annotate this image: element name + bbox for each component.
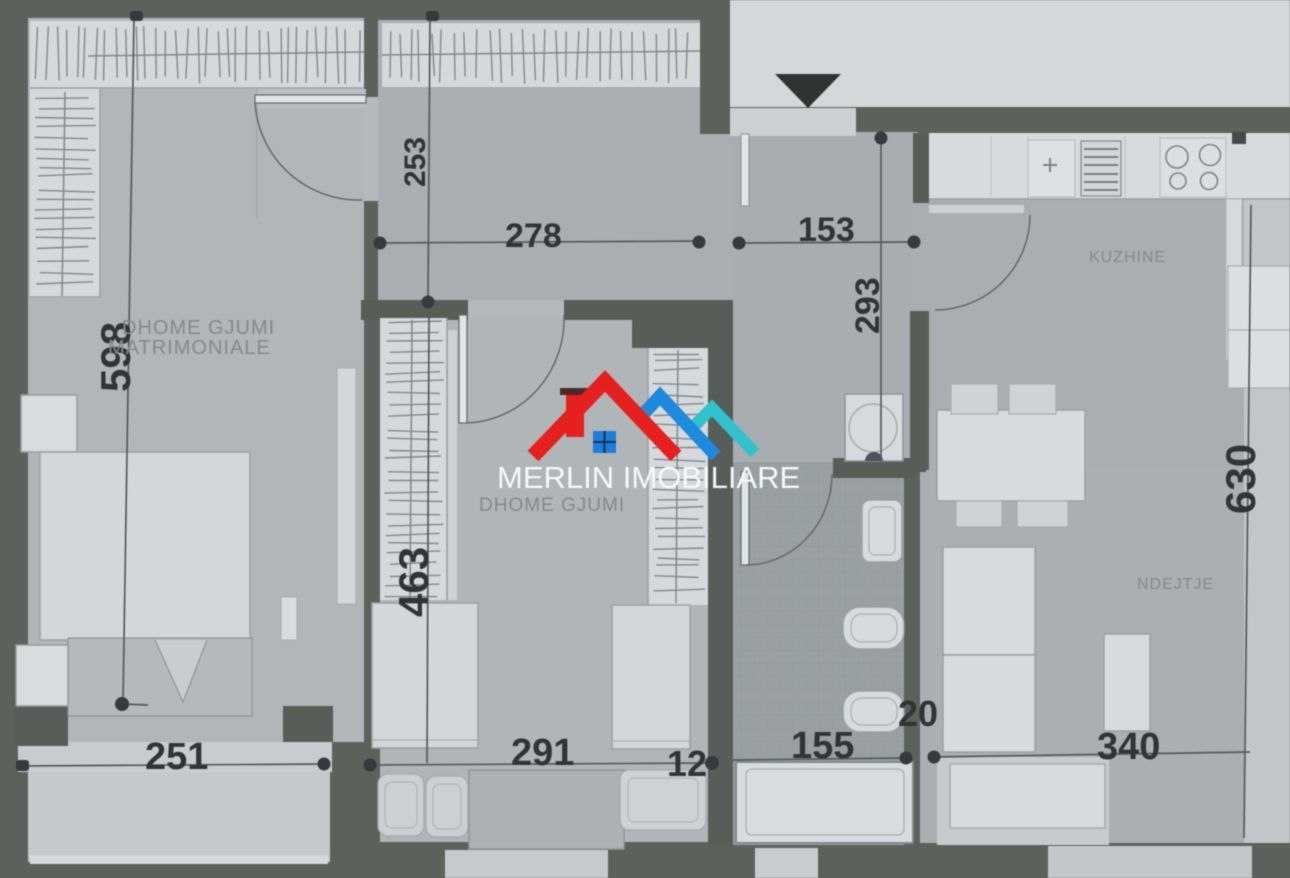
svg-text:NDEJTJE: NDEJTJE	[1137, 576, 1214, 593]
svg-text:MATRIMONIALE: MATRIMONIALE	[108, 337, 271, 359]
svg-text:278: 278	[505, 217, 562, 255]
svg-text:153: 153	[798, 211, 855, 249]
svg-text:155: 155	[791, 725, 854, 767]
svg-text:20: 20	[898, 693, 938, 734]
svg-text:291: 291	[511, 732, 574, 774]
svg-text:DHOME GJUMI: DHOME GJUMI	[479, 495, 625, 516]
svg-text:DHOME GJUMI: DHOME GJUMI	[122, 317, 275, 339]
svg-text:12: 12	[667, 743, 707, 784]
svg-text:MERLIN IMOBILIARE: MERLIN IMOBILIARE	[497, 460, 800, 495]
svg-text:340: 340	[1097, 726, 1160, 768]
svg-text:463: 463	[390, 547, 437, 617]
svg-text:KUZHINE: KUZHINE	[1089, 249, 1166, 266]
svg-text:251: 251	[145, 736, 208, 778]
svg-text:630: 630	[1217, 444, 1264, 514]
svg-text:253: 253	[399, 137, 432, 187]
svg-text:293: 293	[849, 277, 887, 334]
